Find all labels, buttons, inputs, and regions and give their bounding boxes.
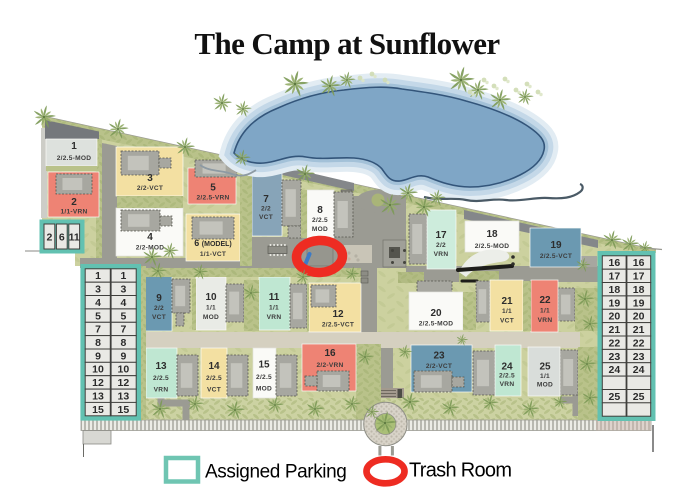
svg-text:4: 4 bbox=[120, 297, 126, 309]
svg-text:4: 4 bbox=[95, 297, 101, 309]
svg-text:1/1: 1/1 bbox=[269, 305, 279, 312]
svg-text:VRN: VRN bbox=[154, 387, 169, 394]
svg-text:22: 22 bbox=[633, 337, 645, 349]
svg-text:MOD: MOD bbox=[203, 314, 219, 321]
svg-text:22: 22 bbox=[609, 337, 621, 349]
svg-text:19: 19 bbox=[609, 297, 621, 309]
svg-text:2: 2 bbox=[71, 197, 77, 208]
svg-text:13: 13 bbox=[92, 391, 104, 403]
svg-text:9: 9 bbox=[95, 350, 101, 362]
svg-text:VCT: VCT bbox=[152, 314, 166, 321]
svg-text:16: 16 bbox=[324, 348, 336, 359]
svg-text:18: 18 bbox=[609, 284, 621, 296]
svg-text:5: 5 bbox=[95, 310, 101, 322]
svg-text:25: 25 bbox=[539, 362, 551, 373]
svg-text:MOD: MOD bbox=[312, 226, 328, 233]
svg-text:25: 25 bbox=[609, 391, 621, 403]
svg-text:15: 15 bbox=[118, 404, 130, 416]
svg-text:2/2.5: 2/2.5 bbox=[256, 374, 272, 381]
svg-text:2/2-VCT: 2/2-VCT bbox=[426, 363, 452, 370]
svg-text:8: 8 bbox=[317, 205, 323, 216]
svg-text:11: 11 bbox=[269, 292, 280, 303]
svg-text:21: 21 bbox=[609, 324, 621, 336]
svg-text:MOD: MOD bbox=[537, 382, 553, 389]
svg-text:20: 20 bbox=[430, 308, 442, 319]
svg-text:2/2.5-MOD: 2/2.5-MOD bbox=[57, 155, 92, 162]
svg-text:18: 18 bbox=[633, 284, 645, 296]
svg-text:2/2.5-VRN: 2/2.5-VRN bbox=[196, 195, 229, 202]
svg-text:13: 13 bbox=[118, 391, 130, 403]
svg-text:8: 8 bbox=[120, 337, 126, 349]
svg-text:24: 24 bbox=[633, 364, 645, 376]
svg-text:10: 10 bbox=[92, 364, 104, 376]
svg-text:21: 21 bbox=[501, 296, 513, 307]
svg-text:VCT: VCT bbox=[259, 214, 273, 221]
svg-text:2/2.5: 2/2.5 bbox=[312, 217, 328, 224]
svg-text:10: 10 bbox=[205, 292, 217, 303]
svg-text:17: 17 bbox=[633, 271, 645, 283]
svg-text:11: 11 bbox=[69, 232, 80, 244]
svg-text:3: 3 bbox=[120, 284, 126, 296]
svg-text:1: 1 bbox=[71, 141, 77, 152]
svg-text:19: 19 bbox=[633, 297, 645, 309]
svg-text:7: 7 bbox=[263, 194, 269, 205]
svg-text:2/2.5: 2/2.5 bbox=[499, 373, 515, 380]
svg-text:1/1: 1/1 bbox=[502, 308, 512, 315]
svg-text:3: 3 bbox=[147, 173, 153, 184]
svg-text:2/2-VRN: 2/2-VRN bbox=[316, 362, 343, 369]
svg-text:23: 23 bbox=[433, 351, 445, 362]
svg-text:16: 16 bbox=[633, 257, 645, 269]
svg-text:17: 17 bbox=[609, 271, 621, 283]
svg-text:19: 19 bbox=[550, 240, 562, 251]
svg-text:4: 4 bbox=[147, 232, 153, 243]
svg-text:Trash Room: Trash Room bbox=[409, 460, 511, 482]
svg-text:15: 15 bbox=[258, 360, 270, 371]
svg-text:22: 22 bbox=[539, 295, 551, 306]
svg-text:12: 12 bbox=[92, 377, 104, 389]
svg-text:2: 2 bbox=[46, 232, 52, 244]
svg-text:9: 9 bbox=[156, 293, 162, 304]
svg-text:8: 8 bbox=[95, 337, 101, 349]
svg-text:1/1: 1/1 bbox=[206, 305, 216, 312]
svg-text:2/2.5: 2/2.5 bbox=[206, 375, 222, 382]
svg-text:2/2-MOD: 2/2-MOD bbox=[136, 245, 165, 252]
svg-text:24: 24 bbox=[501, 362, 513, 373]
svg-text:1: 1 bbox=[95, 270, 101, 282]
svg-text:3: 3 bbox=[95, 284, 101, 296]
svg-text:21: 21 bbox=[633, 324, 645, 336]
svg-text:VCT: VCT bbox=[207, 387, 221, 394]
svg-text:14: 14 bbox=[208, 361, 220, 372]
svg-text:24: 24 bbox=[609, 364, 621, 376]
svg-text:1: 1 bbox=[120, 270, 126, 282]
svg-text:1/1-VCT: 1/1-VCT bbox=[200, 251, 226, 258]
svg-text:18: 18 bbox=[486, 229, 498, 240]
svg-text:25: 25 bbox=[633, 391, 645, 403]
svg-text:The Camp at Sunflower: The Camp at Sunflower bbox=[194, 26, 500, 61]
svg-text:5: 5 bbox=[210, 183, 216, 194]
svg-text:MOD: MOD bbox=[256, 386, 272, 393]
svg-text:9: 9 bbox=[120, 350, 126, 362]
svg-text:20: 20 bbox=[633, 311, 645, 323]
svg-text:7: 7 bbox=[95, 324, 101, 336]
svg-text:7: 7 bbox=[120, 324, 126, 336]
svg-text:VRN: VRN bbox=[434, 251, 449, 258]
svg-text:6: 6 bbox=[59, 232, 65, 244]
svg-text:VRN: VRN bbox=[538, 317, 553, 324]
svg-text:1/1-VRN: 1/1-VRN bbox=[60, 209, 87, 216]
svg-text:2/2: 2/2 bbox=[154, 305, 164, 312]
svg-text:2/2: 2/2 bbox=[261, 206, 271, 213]
svg-text:2/2: 2/2 bbox=[436, 242, 446, 249]
svg-text:Assigned Parking: Assigned Parking bbox=[205, 462, 346, 483]
svg-text:2/2.5: 2/2.5 bbox=[153, 375, 169, 382]
svg-text:23: 23 bbox=[633, 351, 645, 363]
svg-text:VRN: VRN bbox=[267, 314, 282, 321]
svg-text:1/1: 1/1 bbox=[540, 308, 550, 315]
svg-text:1/1: 1/1 bbox=[540, 373, 550, 380]
svg-text:13: 13 bbox=[155, 361, 167, 372]
svg-text:2/2-VCT: 2/2-VCT bbox=[137, 185, 163, 192]
svg-text:12: 12 bbox=[118, 377, 130, 389]
svg-text:15: 15 bbox=[92, 404, 104, 416]
svg-text:23: 23 bbox=[609, 351, 621, 363]
svg-text:12: 12 bbox=[332, 309, 344, 320]
svg-text:10: 10 bbox=[118, 364, 130, 376]
svg-text:VCT: VCT bbox=[500, 318, 514, 325]
svg-text:16: 16 bbox=[609, 257, 621, 269]
svg-text:VRN: VRN bbox=[500, 381, 515, 388]
svg-text:2/2.5-MOD: 2/2.5-MOD bbox=[475, 243, 510, 250]
svg-text:2/2.5-VCT: 2/2.5-VCT bbox=[322, 322, 354, 329]
svg-text:20: 20 bbox=[609, 311, 621, 323]
svg-text:17: 17 bbox=[435, 230, 447, 241]
svg-text:2/2.5-VCT: 2/2.5-VCT bbox=[540, 253, 572, 260]
svg-text:5: 5 bbox=[120, 310, 126, 322]
svg-text:2/2.5-MOD: 2/2.5-MOD bbox=[419, 321, 454, 328]
